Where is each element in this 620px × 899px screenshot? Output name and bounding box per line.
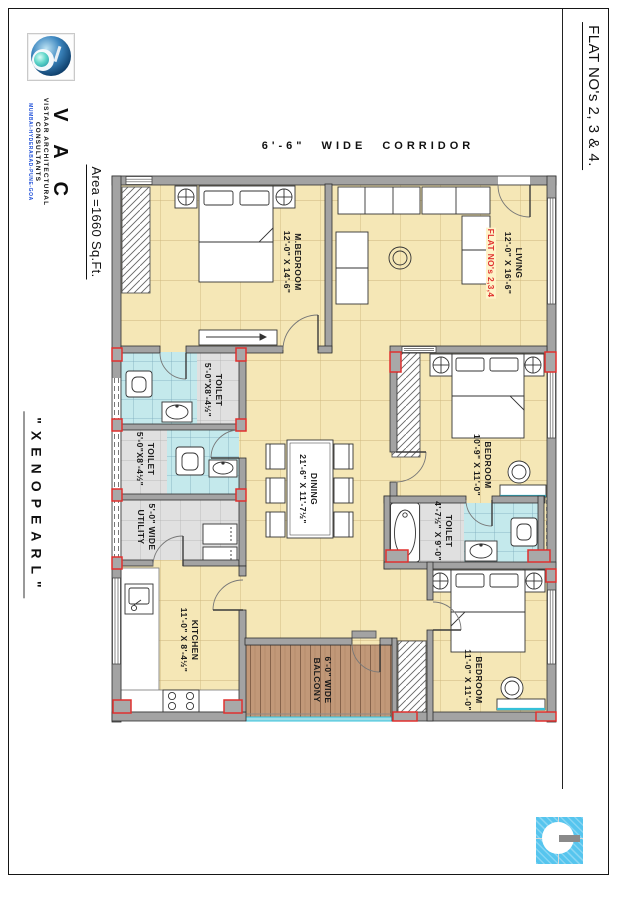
bedside-table-icon (523, 570, 545, 592)
room-dims: 4'-7½" X 9'-0" (432, 501, 443, 561)
dresser-icon (199, 330, 277, 345)
room-dims: 21'-6" X 11'-7½" (297, 454, 308, 524)
flat-numbers-title: FLAT NO's 2, 3 & 4. (582, 22, 602, 170)
brand-abbr: V A C (49, 99, 70, 205)
room-dims: 11'-0" X 11'-0" (462, 649, 473, 711)
brand-name-line2: CONSULTANTS (33, 122, 41, 182)
basin-icon (209, 460, 237, 477)
room-name: TOILET (443, 515, 454, 547)
room-label-kitchen: KITCHEN 11'-0" X 8'-4½" (178, 608, 200, 672)
room-dims: 5'-0"X8'-4½" (202, 363, 213, 417)
room-name: 6'-0" WIDE (322, 657, 333, 704)
room-name: DINING (308, 473, 319, 505)
room-dims: 5'-0"X8'-4½" (134, 432, 145, 486)
wc-icon (126, 371, 152, 397)
basin-icon (162, 402, 192, 422)
room-label-living: LIVING 12'-0" X 16'-6" (502, 232, 524, 295)
room-name: KITCHEN (189, 620, 200, 661)
double-bed-icon (452, 354, 524, 438)
double-bed-icon (199, 186, 273, 282)
room-label-bedroom-right: BEDROOM 10'-9" X 11'-0" (471, 434, 493, 496)
brand-cities: MUMBAI-HYDERABAD-PUNE-GOA (26, 103, 33, 201)
company-logo (27, 33, 75, 81)
room-label-toilet-1: TOILET 5'-0"X8'-4½" (202, 363, 224, 417)
bedside-table-icon (273, 186, 295, 208)
room-dims: 11'-0" X 8'-4½" (178, 608, 189, 672)
room-dims: UTILITY (135, 510, 146, 545)
corner-bar (559, 835, 580, 842)
room-dims: 12'-0" X 14'-6" (281, 231, 292, 294)
room-name: 5'-0" WIDE (146, 504, 157, 551)
bedside-table-icon (175, 186, 197, 208)
bedside-table-icon (430, 354, 452, 376)
washer-icon (203, 524, 237, 564)
drawing-sheet: 6'-6" WIDE CORRIDOR M.BEDROOM 12'-0" X 1… (0, 0, 620, 899)
brand-text-block: V A C VISTAAR ARCHITECTURAL CONSULTANTS … (26, 98, 70, 206)
room-dims: BALCONY (311, 658, 322, 703)
sink-icon (125, 584, 153, 614)
room-label-toilet-2: TOILET 5'-0"X8'-4½" (134, 432, 156, 486)
room-name: BEDROOM (482, 441, 493, 488)
wc-icon (511, 518, 537, 546)
room-label-bedroom-bottom: BEDROOM 11'-0" X 11'-0" (462, 649, 484, 711)
logo-dot-icon (34, 52, 49, 67)
wc-icon (176, 447, 204, 475)
room-name: LIVING (513, 248, 524, 279)
room-name: M.BEDROOM (292, 233, 303, 290)
floor-plan-drawing (0, 0, 620, 899)
double-bed-icon (451, 570, 525, 652)
room-name: TOILET (145, 443, 156, 475)
area-label: Area =1660 Sq.Ft. (86, 165, 104, 280)
room-dims: 10'-9" X 11'-0" (471, 434, 482, 496)
bedside-table-icon (522, 354, 544, 376)
brand-name-line1: VISTAAR ARCHITECTURAL (41, 98, 49, 206)
project-name-label: "XENOPEARL" (24, 411, 45, 598)
room-name: BEDROOM (473, 656, 484, 703)
room-label-balcony: 6'-0" WIDE BALCONY (311, 657, 333, 704)
corner-stamp-icon (536, 817, 583, 864)
room-label-toilet-right: TOILET 4'-7½" X 9'-0" (432, 501, 454, 561)
corridor-label: 6'-6" WIDE CORRIDOR (262, 140, 474, 152)
room-label-m-bedroom: M.BEDROOM 12'-0" X 14'-6" (281, 231, 303, 294)
stove-icon (163, 690, 199, 712)
room-label-dining: DINING 21'-6" X 11'-7½" (297, 454, 319, 524)
flat-numbers-note: FLAT NO's 2,3,4 (486, 228, 496, 299)
basin-icon (465, 541, 497, 561)
room-name: TOILET (213, 374, 224, 406)
room-label-utility: 5'-0" WIDE UTILITY (135, 504, 157, 551)
room-dims: 12'-0" X 16'-6" (502, 232, 513, 295)
